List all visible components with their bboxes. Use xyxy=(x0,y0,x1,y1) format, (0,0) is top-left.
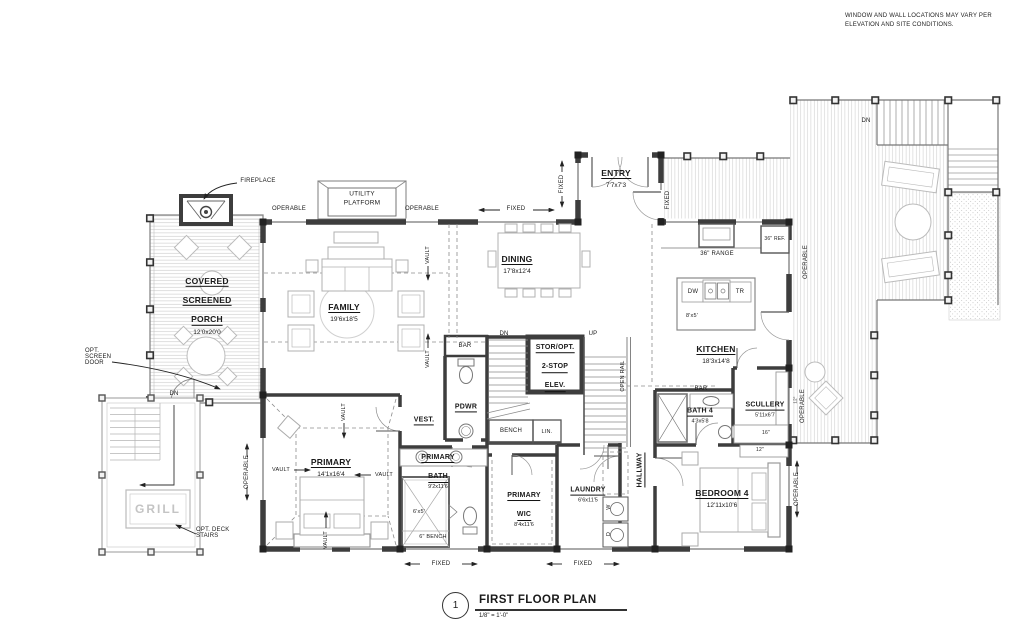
bar-label: BAR xyxy=(459,343,472,349)
bar-label: BAR xyxy=(695,386,708,392)
window-label-operable: OPERABLE xyxy=(803,245,809,279)
vault-label: VAULT xyxy=(341,403,347,421)
window-label-fixed: FIXED xyxy=(507,206,526,212)
detail-number-bubble: 1 xyxy=(442,592,469,619)
dishwasher-label: DW xyxy=(688,289,698,295)
room-label-laundry: LAUNDRY 6'6x11'5 xyxy=(570,478,605,505)
window-label-operable: OPERABLE xyxy=(244,455,250,489)
utility-platform-label-1: UTILITY xyxy=(349,191,375,198)
dim-16-label: 16" xyxy=(762,430,770,436)
room-label-bath4: BATH 4 4'3x5'8 xyxy=(687,399,713,426)
shower-size-label: 6'x5' xyxy=(413,509,425,515)
grill-label: GRILL xyxy=(135,502,181,516)
floor-plan-drawing xyxy=(0,0,1024,627)
trash-label: TR xyxy=(736,289,744,295)
room-label-primary-wic: PRIMARY WIC 8'4x11'6 xyxy=(507,483,540,529)
vault-label: VAULT xyxy=(323,531,329,549)
drawing-scale: 1/8" = 1'-0" xyxy=(479,613,508,619)
room-label-elevator: STOR/OPT. 2-STOP ELEV. xyxy=(536,335,575,393)
shower-bench-label: 6" BENCH xyxy=(419,534,446,540)
grill-deck xyxy=(99,395,203,555)
room-label-scullery: SCULLERY 5'11x6'7 xyxy=(745,393,784,420)
window-label-fixed: FIXED xyxy=(432,561,451,567)
vault-label: VAULT xyxy=(375,472,393,478)
room-label-bedroom4: BEDROOM 4 12'11x10'6 xyxy=(695,482,748,510)
title-underline xyxy=(475,609,627,611)
room-label-vestibule: VEST. xyxy=(414,407,434,426)
island-size-label: 8'x5' xyxy=(686,313,698,319)
room-label-dining: DINING 17'8x12'4 xyxy=(502,248,533,276)
window-label-operable: OPERABLE xyxy=(800,389,806,423)
open-rail-label: OPEN RAIL xyxy=(620,360,626,391)
vault-label: VAULT xyxy=(425,350,431,368)
room-label-powder: PDWR xyxy=(455,394,477,413)
utility-platform-label-2: PLATFORM xyxy=(344,200,381,207)
drawing-title: FIRST FLOOR PLAN xyxy=(479,594,597,606)
room-label-primary: PRIMARY 14'1x16'4 xyxy=(311,451,351,479)
room-label-entry: ENTRY 7'7x7'3 xyxy=(601,162,631,190)
note-line-1: WINDOW AND WALL LOCATIONS MAY VARY PER xyxy=(845,12,992,21)
window-label-operable: OPERABLE xyxy=(794,472,800,506)
window-label-fixed: FIXED xyxy=(665,191,671,210)
room-label-family: FAMILY 19'6x18'5 xyxy=(328,296,360,324)
room-label-hallway: HALLWAY xyxy=(627,453,646,488)
linen-label: LIN. xyxy=(542,429,553,435)
washer-label: W xyxy=(606,504,612,509)
window-label-operable: OPERABLE xyxy=(405,206,439,212)
fireplace-label: FIREPLACE xyxy=(240,178,275,184)
vault-label: VAULT xyxy=(272,467,290,473)
porch-dn-label: DN xyxy=(169,391,178,397)
window-label-operable: OPERABLE xyxy=(272,206,306,212)
note-line-2: ELEVATION AND SITE CONDITIONS. xyxy=(845,21,992,30)
window-label-fixed: FIXED xyxy=(574,561,593,567)
general-note: WINDOW AND WALL LOCATIONS MAY VARY PER E… xyxy=(845,12,992,31)
dim-12-label: 12" xyxy=(793,396,798,403)
floor-plan-sheet: WINDOW AND WALL LOCATIONS MAY VARY PER E… xyxy=(0,0,1024,627)
detail-number: 1 xyxy=(453,600,459,611)
range-label: 36" RANGE xyxy=(700,251,734,257)
opt-deck-stairs-label: OPT. DECK STAIRS xyxy=(196,527,229,539)
stair-up-label: UP xyxy=(589,331,598,337)
dryer-label: D xyxy=(606,532,612,536)
fridge-label: 36" REF. xyxy=(764,236,785,242)
room-label-porch: COVERED SCREENED PORCH 12'0x20'0 xyxy=(183,270,232,336)
stair-dn-label: DN xyxy=(499,331,508,337)
window-label-fixed: FIXED xyxy=(559,175,565,194)
dim-12-label: 12" xyxy=(756,447,764,453)
bench-label: BENCH xyxy=(500,428,522,434)
fireplace-structure xyxy=(181,196,231,224)
room-label-kitchen: KITCHEN 18'3x14'8 xyxy=(696,338,735,366)
vault-label: VAULT xyxy=(425,246,431,264)
opt-screen-door-label: OPT. SCREEN DOOR xyxy=(85,348,111,366)
room-label-primary-bath: PRIMARY BATH 9'2x11'6 xyxy=(421,445,454,491)
deck-dn-label: DN xyxy=(861,118,870,124)
